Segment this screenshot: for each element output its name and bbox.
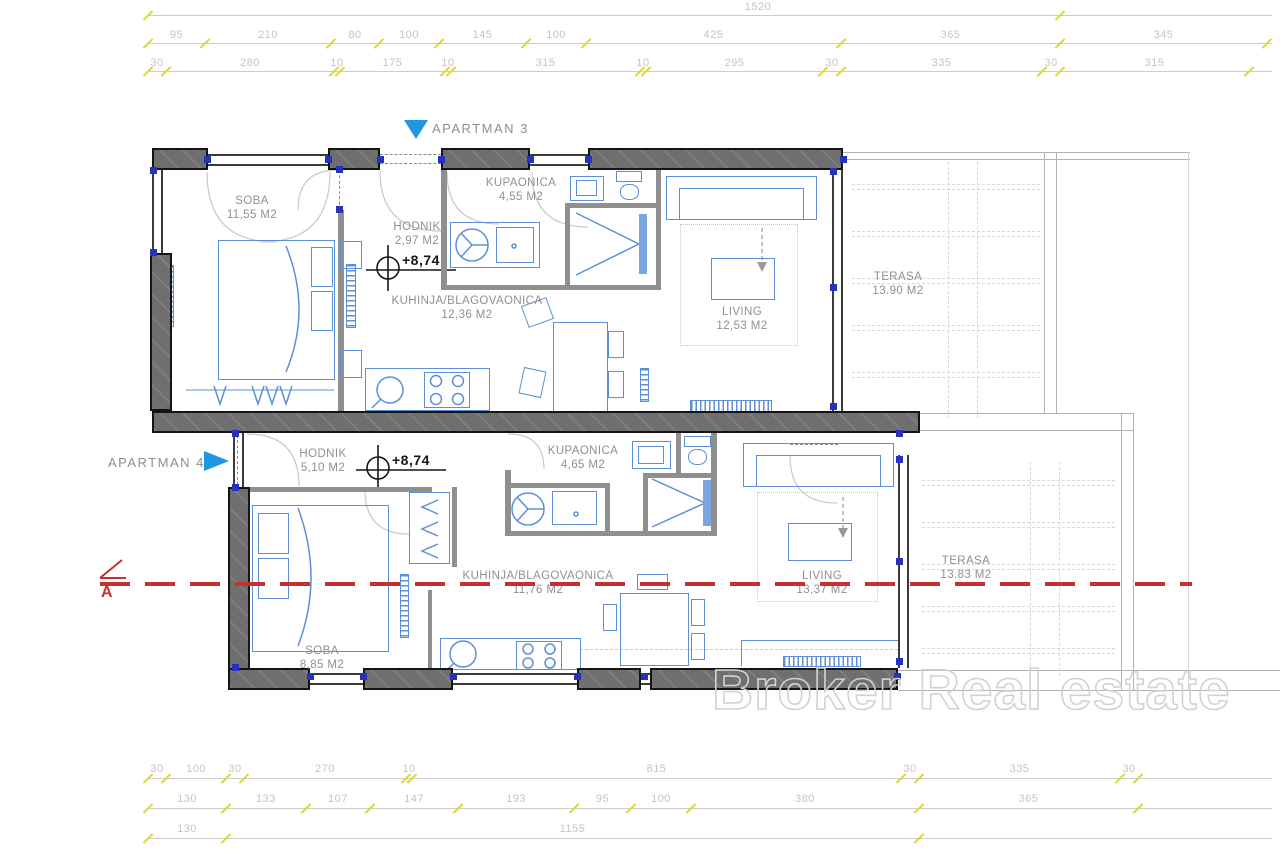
window-junction-marker — [307, 673, 314, 680]
window-junction-marker — [360, 673, 367, 680]
window-glazing — [207, 154, 328, 156]
window-glazing — [530, 164, 588, 166]
room-area: 4,65 M2 — [548, 458, 618, 472]
window-glazing — [453, 673, 577, 675]
window-glazing — [233, 433, 235, 487]
room-name: SOBA — [300, 644, 344, 658]
bath-counter — [450, 222, 540, 268]
washbasin-bowl — [576, 180, 597, 196]
window-glazing — [242, 433, 244, 487]
apartment-4-label: APARTMAN 4 — [108, 455, 205, 470]
window-glazing — [907, 455, 909, 668]
room-name: KUPAONICA — [548, 444, 618, 458]
window-glazing — [453, 683, 577, 685]
room-name: KUPAONICA — [486, 176, 556, 190]
room-name: KUHINJA/BLAGOVAONICA — [392, 294, 543, 308]
room-label-kupaonica-apt4: KUPAONICA 4,65 M2 — [548, 444, 618, 472]
window-junction-marker — [336, 166, 343, 173]
sofa-seat — [679, 188, 804, 220]
room-label-terasa-apt3: TERASA 13.90 M2 — [872, 270, 923, 298]
elevation-apt4: +8,74 — [392, 452, 430, 468]
window-junction-marker — [204, 156, 211, 163]
wall — [577, 668, 641, 690]
window-glazing — [310, 673, 363, 675]
pillow — [258, 513, 289, 554]
window-junction-marker — [585, 156, 592, 163]
room-label-soba-apt3: SOBA 11,55 M2 — [227, 194, 277, 222]
room-name: TERASA — [872, 270, 923, 284]
apartment-4-marker-icon — [204, 451, 229, 471]
window-glazing — [152, 170, 154, 253]
pillow — [311, 247, 333, 287]
toilet-bowl — [620, 184, 639, 200]
room-label-terasa-apt4: TERASA 13.83 M2 — [940, 554, 991, 582]
partition-wall — [605, 483, 610, 536]
partition-wall — [643, 473, 648, 535]
room-area: 4,55 M2 — [486, 190, 556, 204]
room-name: LIVING — [716, 305, 767, 319]
room-name: KUHINJA/BLAGOVAONICA — [463, 569, 614, 583]
chair — [608, 371, 624, 398]
window-junction-marker — [896, 430, 903, 437]
toilet-tank — [684, 436, 711, 447]
washbasin-bowl — [638, 446, 664, 464]
toilet-tank — [616, 171, 642, 182]
watermark: Broker Real estate — [712, 657, 1231, 723]
wall — [152, 148, 208, 170]
section-letter: A — [101, 584, 113, 602]
chair — [691, 599, 705, 626]
chair — [691, 633, 705, 660]
window-glazing — [641, 683, 650, 685]
pillow — [258, 558, 289, 599]
window-junction-marker — [450, 673, 457, 680]
window-junction-marker — [150, 167, 157, 174]
room-name: HODNIK — [299, 447, 346, 461]
window-junction-marker — [232, 430, 239, 437]
wall — [150, 253, 172, 411]
partition-wall — [676, 430, 681, 475]
window-junction-marker — [840, 156, 847, 163]
window-junction-marker — [325, 156, 332, 163]
room-label-hodnik-apt3: HODNIK 2,97 M2 — [393, 220, 440, 248]
room-name: SOBA — [227, 194, 277, 208]
partition-wall — [505, 483, 610, 488]
wardrobe — [409, 492, 450, 564]
wall — [588, 148, 843, 170]
window-glazing — [530, 154, 588, 156]
partition-wall — [565, 203, 570, 290]
toilet-bowl — [688, 449, 707, 465]
window-junction-marker — [641, 673, 648, 680]
chair — [608, 331, 624, 358]
shower-door — [703, 480, 711, 526]
wall — [441, 148, 530, 170]
floor-plan-canvas: APARTMAN 3 APARTMAN 4 SOBA 11,55 M2 HODN… — [0, 0, 1280, 853]
shower-door — [639, 214, 647, 274]
wall — [152, 411, 920, 433]
room-label-kupaonica-apt3: KUPAONICA 4,55 M2 — [486, 176, 556, 204]
section-mark — [100, 560, 126, 578]
room-name: HODNIK — [393, 220, 440, 234]
window-junction-marker — [150, 249, 157, 256]
window-junction-marker — [377, 156, 384, 163]
wall — [363, 668, 453, 690]
room-label-hodnik-apt4: HODNIK 5,10 M2 — [299, 447, 346, 475]
window-junction-marker — [438, 156, 445, 163]
window-junction-marker — [896, 456, 903, 463]
partition-wall — [505, 531, 717, 536]
room-name: LIVING — [796, 569, 847, 583]
partition-wall — [441, 170, 447, 290]
partition-wall — [643, 473, 717, 478]
room-area: 13.83 M2 — [940, 568, 991, 582]
room-area: 13.90 M2 — [872, 284, 923, 298]
window-junction-marker — [336, 206, 343, 213]
window-junction-marker — [830, 284, 837, 291]
partition-wall — [505, 470, 511, 536]
sofa-seat — [756, 455, 881, 487]
partition-wall — [250, 487, 432, 492]
partition-wall — [441, 285, 661, 290]
partition-wall — [711, 433, 717, 536]
elevation-apt3: +8,74 — [402, 252, 440, 268]
radiator — [640, 368, 649, 402]
room-label-living-apt3: LIVING 12,53 M2 — [716, 305, 767, 333]
window-junction-marker — [232, 664, 239, 671]
window-glazing — [310, 683, 363, 685]
section-line — [100, 582, 1192, 586]
hall-closet — [346, 264, 356, 328]
room-name: TERASA — [940, 554, 991, 568]
window-junction-marker — [896, 558, 903, 565]
dining-table — [620, 593, 689, 666]
room-area: 12,36 M2 — [392, 308, 543, 322]
room-area: 8,85 M2 — [300, 658, 344, 672]
window-glazing — [841, 170, 843, 411]
room-label-kuhinja-apt3: KUHINJA/BLAGOVAONICA 12,36 M2 — [392, 294, 543, 322]
room-label-soba-apt4: SOBA 8,85 M2 — [300, 644, 344, 672]
window-junction-marker — [830, 168, 837, 175]
pillow — [311, 291, 333, 331]
partition-wall — [565, 203, 657, 208]
partition-wall — [452, 487, 457, 567]
partition-wall — [656, 170, 661, 290]
wall — [228, 487, 250, 670]
window-junction-marker — [527, 156, 534, 163]
room-area: 2,97 M2 — [393, 234, 440, 248]
window-junction-marker — [232, 484, 239, 491]
wall — [228, 668, 310, 690]
apartment-3-label: APARTMAN 3 — [432, 121, 529, 136]
stove — [516, 641, 562, 670]
chair — [603, 604, 617, 631]
stove — [424, 372, 470, 408]
room-area: 11,55 M2 — [227, 208, 277, 222]
dining-table — [553, 322, 608, 412]
room-area: 5,10 M2 — [299, 461, 346, 475]
window-junction-marker — [830, 403, 837, 410]
window-junction-marker — [574, 673, 581, 680]
sink — [552, 491, 597, 525]
partition-wall — [428, 590, 432, 668]
window-glazing — [161, 170, 163, 253]
room-area: 12,53 M2 — [716, 319, 767, 333]
nightstand — [340, 350, 362, 378]
apartment-3-marker-icon — [404, 120, 428, 139]
window-glazing — [207, 164, 328, 166]
